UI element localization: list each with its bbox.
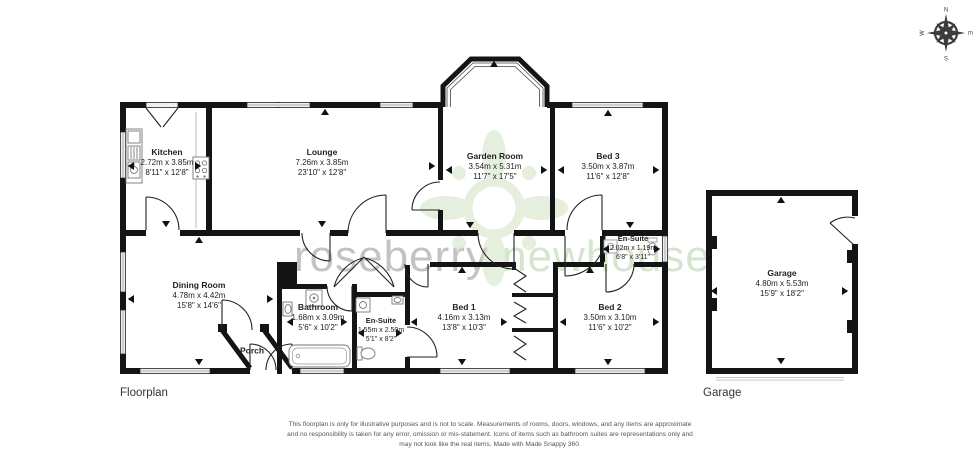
compass-e: E — [966, 31, 972, 35]
caption-garage: Garage — [703, 387, 741, 399]
room-label-bed1: Bed 1 4.16m x 3.13m 13'8" x 10'3" — [438, 302, 491, 334]
caption-floorplan: Floorplan — [120, 387, 168, 399]
room-label-kitchen: Kitchen 2.72m x 3.85m 8'11" x 12'8" — [141, 147, 194, 179]
disclaimer-line-1: This floorplan is only for illustrative … — [0, 420, 980, 430]
room-label-lounge: Lounge 7.26m x 3.85m 23'10" x 12'8" — [296, 147, 349, 179]
ensuite-shower-icon — [356, 298, 370, 312]
disclaimer-line-2: and no responsibility is taken for any e… — [0, 430, 980, 440]
room-label-bathroom: Bathroom 1.68m x 3.09m 5'6" x 10'2" — [292, 302, 345, 334]
bathtub-icon — [289, 345, 350, 367]
ensuite-toilet-icon — [357, 347, 375, 360]
garage-threshold — [716, 378, 844, 381]
disclaimer-line-3: may not look like the real items. Made w… — [0, 440, 980, 450]
compass-s: S — [944, 57, 948, 63]
room-label-porch: Porch — [240, 345, 264, 356]
room-label-bed2: Bed 2 3.50m x 3.10m 11'6" x 10'2" — [584, 302, 637, 334]
room-label-ensuite-bed1: En-Suite 1.55m x 2.50m 5'1" x 8'2" — [358, 316, 404, 344]
compass-w: W — [920, 30, 926, 36]
room-label-dining-room: Dining Room 4.78m x 4.42m 15'8" x 14'6" — [173, 280, 226, 312]
room-label-garage: Garage 4.80m x 5.53m 15'9" x 18'2" — [756, 268, 809, 300]
room-label-bed3: Bed 3 3.50m x 3.87m 11'6" x 12'8" — [582, 151, 635, 183]
floorplan-page: roseberry newhouse — [0, 0, 980, 455]
room-label-garden-room: Garden Room 3.54m x 5.31m 11'7" x 17'5" — [467, 151, 523, 183]
ensuite-sink-icon — [392, 296, 403, 304]
compass-n: N — [944, 8, 948, 14]
disclaimer: This floorplan is only for illustrative … — [0, 420, 980, 451]
compass-icon: N S W E — [920, 8, 972, 63]
room-label-ensuite-bed3: En-Suite 2.02m x 1.19m 6'8" x 3'11" — [610, 234, 656, 262]
